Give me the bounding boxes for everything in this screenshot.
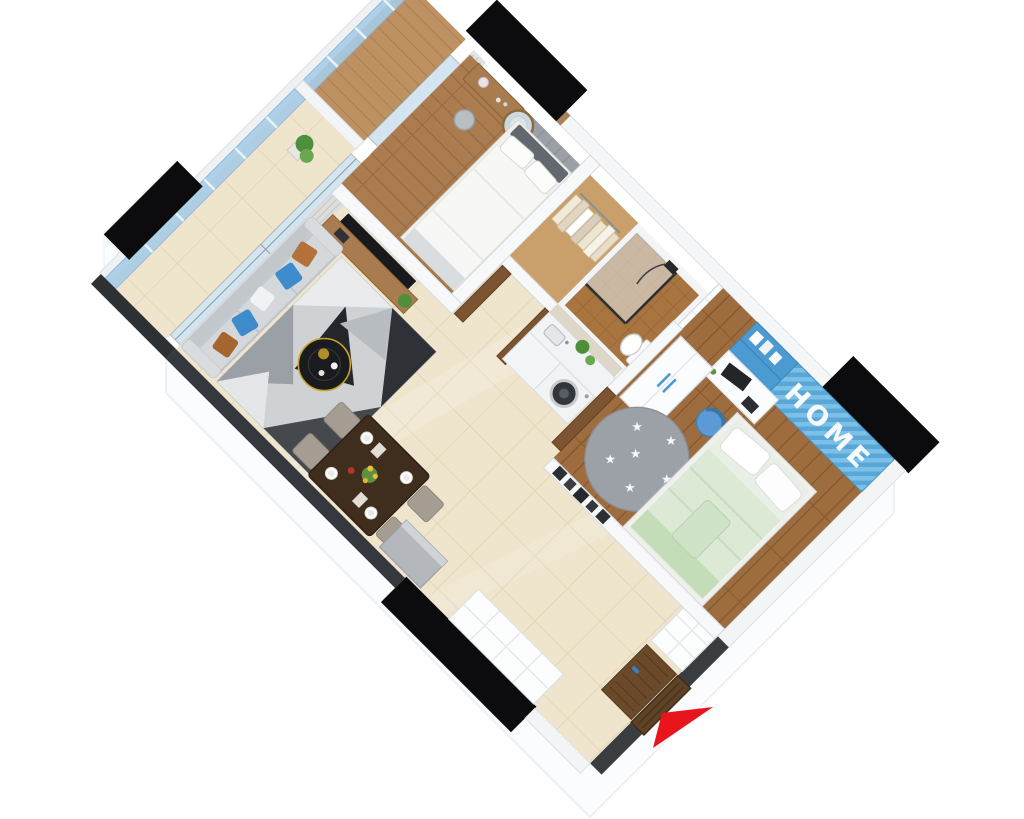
floorplan-render: HOME (0, 0, 1024, 819)
star-icon: ★ (631, 420, 643, 435)
star-icon: ★ (630, 447, 642, 462)
star-icon: ★ (665, 434, 677, 449)
star-icon: ★ (604, 453, 616, 468)
star-icon: ★ (624, 481, 636, 496)
entrance-direction-arrow (653, 707, 713, 748)
floorplan-svg: HOME (0, 0, 1024, 819)
